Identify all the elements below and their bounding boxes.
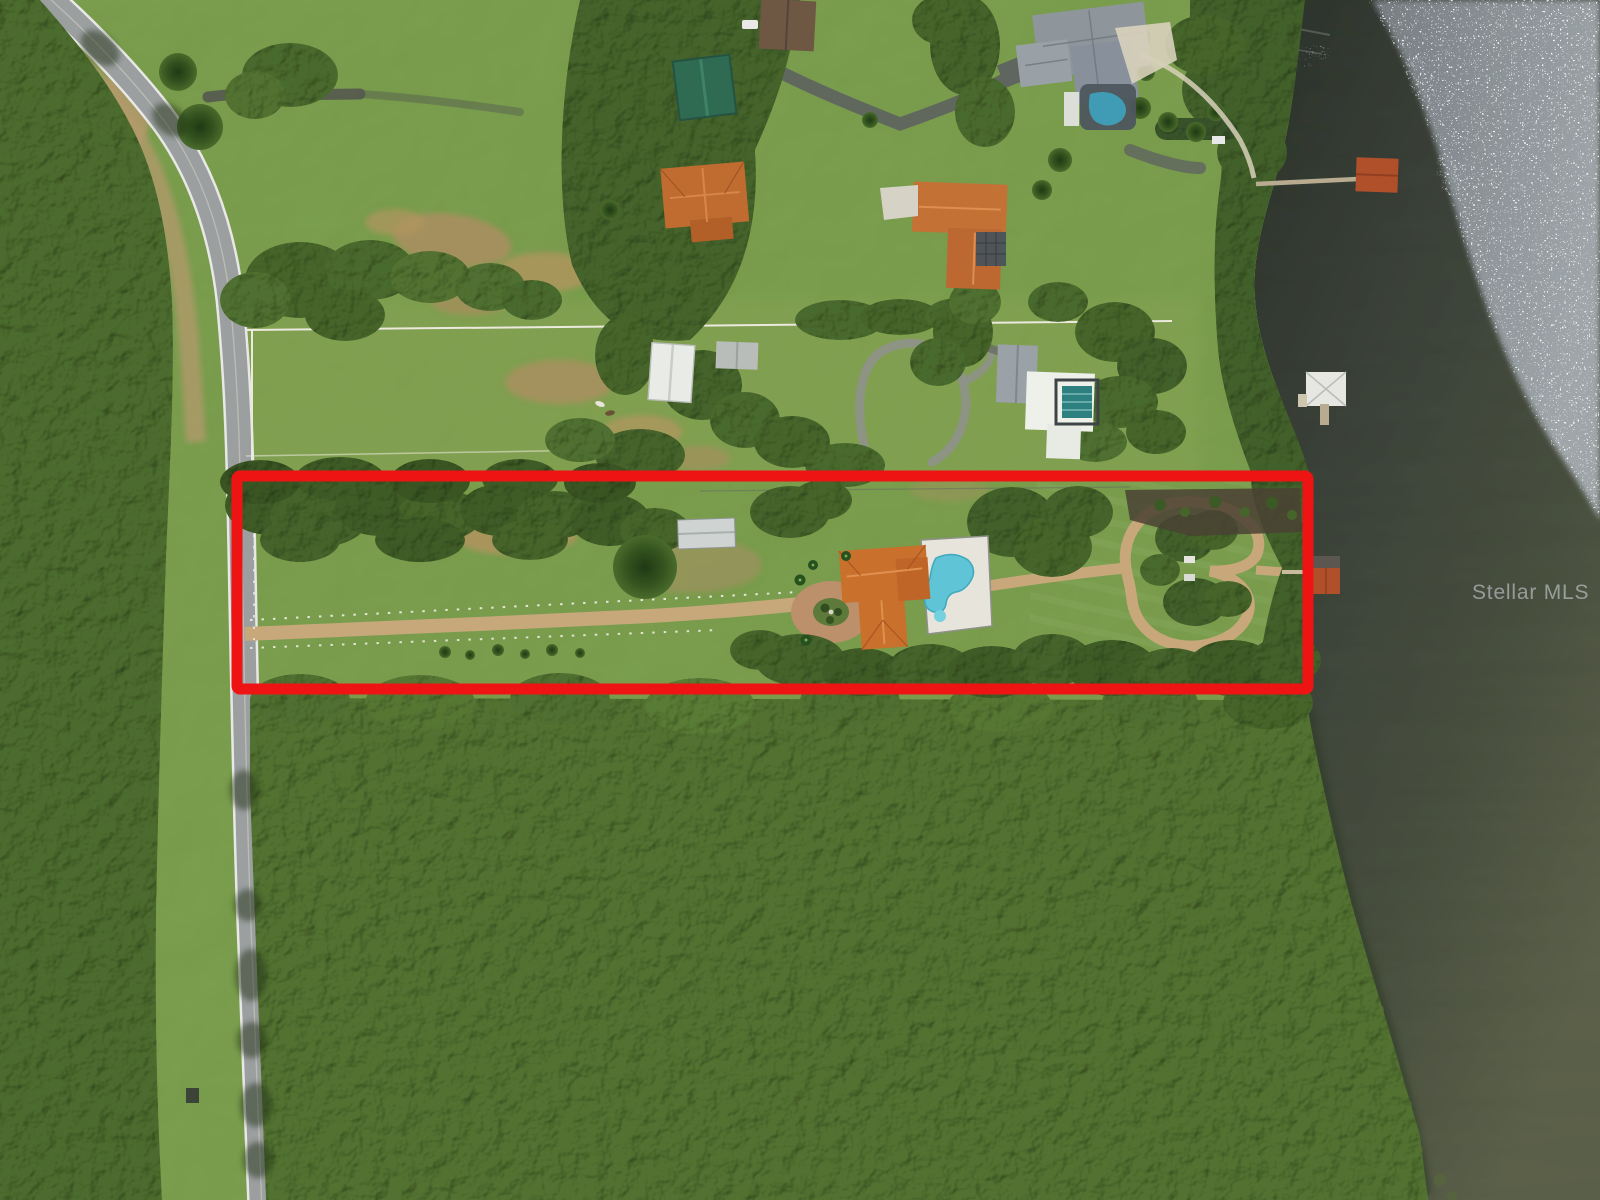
parked-vehicle	[742, 20, 758, 29]
screened-porch	[976, 232, 1006, 266]
parked-vehicle	[1184, 556, 1195, 563]
parked-vehicle	[1184, 574, 1195, 581]
parcel-shed	[678, 518, 736, 549]
parked-vehicle	[1212, 136, 1225, 144]
green-roof-barn	[673, 55, 737, 121]
roadside-structure	[186, 1088, 199, 1103]
spa	[934, 610, 946, 622]
white-barn	[648, 343, 695, 403]
concrete-pad	[880, 185, 918, 220]
aerial-photo-canvas: Stellar MLS	[0, 0, 1600, 1200]
aerial-photo: Stellar MLS	[0, 0, 1600, 1200]
gray-shed	[716, 341, 759, 369]
watermark: Stellar MLS	[1472, 581, 1589, 604]
